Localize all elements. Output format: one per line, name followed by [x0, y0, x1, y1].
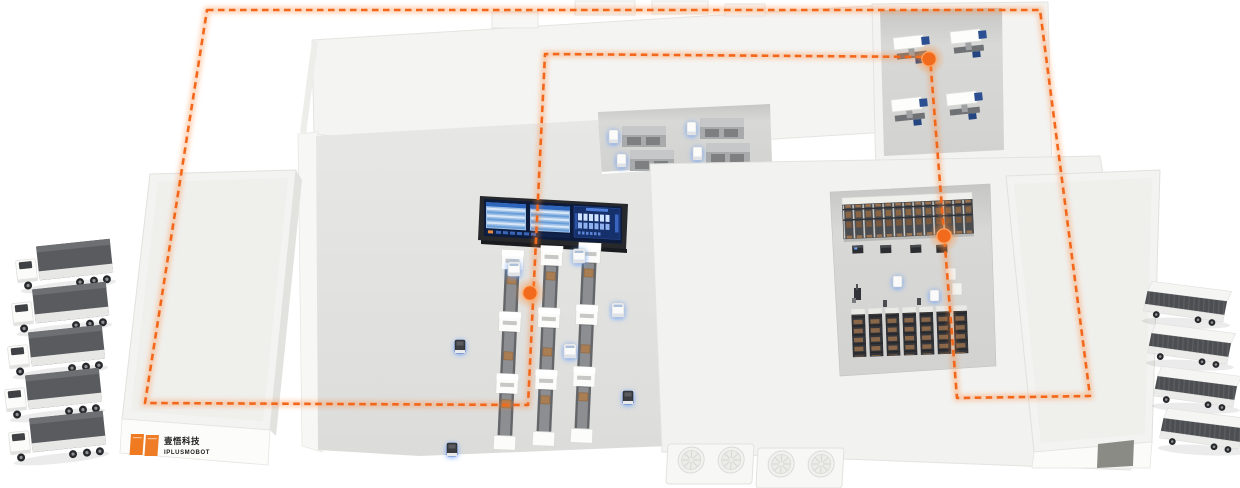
palletizer-bay	[872, 2, 1052, 180]
dashboard-table-panel	[486, 202, 526, 230]
worker	[883, 300, 887, 307]
rack-unit	[868, 308, 884, 356]
agv-robot	[893, 276, 902, 287]
agv-robot	[508, 262, 520, 276]
facility-illustration: 壹悟科技 IPLUSMOBOT	[0, 0, 1240, 488]
worker	[917, 298, 921, 305]
left-warehouse-wing: 壹悟科技 IPLUSMOBOT	[120, 170, 302, 465]
logo-text-cn: 壹悟科技	[164, 436, 200, 446]
facility-scene: 壹悟科技 IPLUSMOBOT	[0, 0, 1240, 488]
delivery-van	[1152, 366, 1240, 416]
mobile-robot	[455, 340, 465, 353]
dashboard-metrics-panel	[574, 206, 620, 240]
rack-unit	[919, 306, 935, 354]
agv-robot	[573, 249, 585, 263]
hvac-unit	[666, 444, 754, 484]
storage-rack-zone	[830, 184, 996, 376]
transfer-vans	[1142, 281, 1240, 458]
delivery-van	[1158, 408, 1240, 458]
route-waypoint	[928, 220, 960, 252]
hvac-unit	[756, 448, 844, 488]
delivery-van	[1146, 323, 1236, 373]
delivery-van	[1142, 281, 1232, 331]
dock-trucks	[3, 239, 116, 469]
rack-unit	[885, 307, 901, 355]
dashboard-screen	[478, 196, 628, 253]
mobile-robot	[447, 443, 457, 456]
route-waypoint	[913, 43, 945, 75]
agv-robot	[564, 344, 576, 358]
mobile-robot	[623, 391, 633, 404]
rack-unit	[851, 309, 867, 357]
company-logo: 壹悟科技 IPLUSMOBOT	[129, 434, 210, 456]
wing-doorway	[1097, 440, 1134, 468]
agv-robot	[612, 303, 624, 317]
logo-text-en: IPLUSMOBOT	[164, 450, 210, 456]
agv-robot	[930, 290, 939, 301]
route-waypoint	[514, 277, 546, 309]
rack-unit	[902, 307, 918, 355]
